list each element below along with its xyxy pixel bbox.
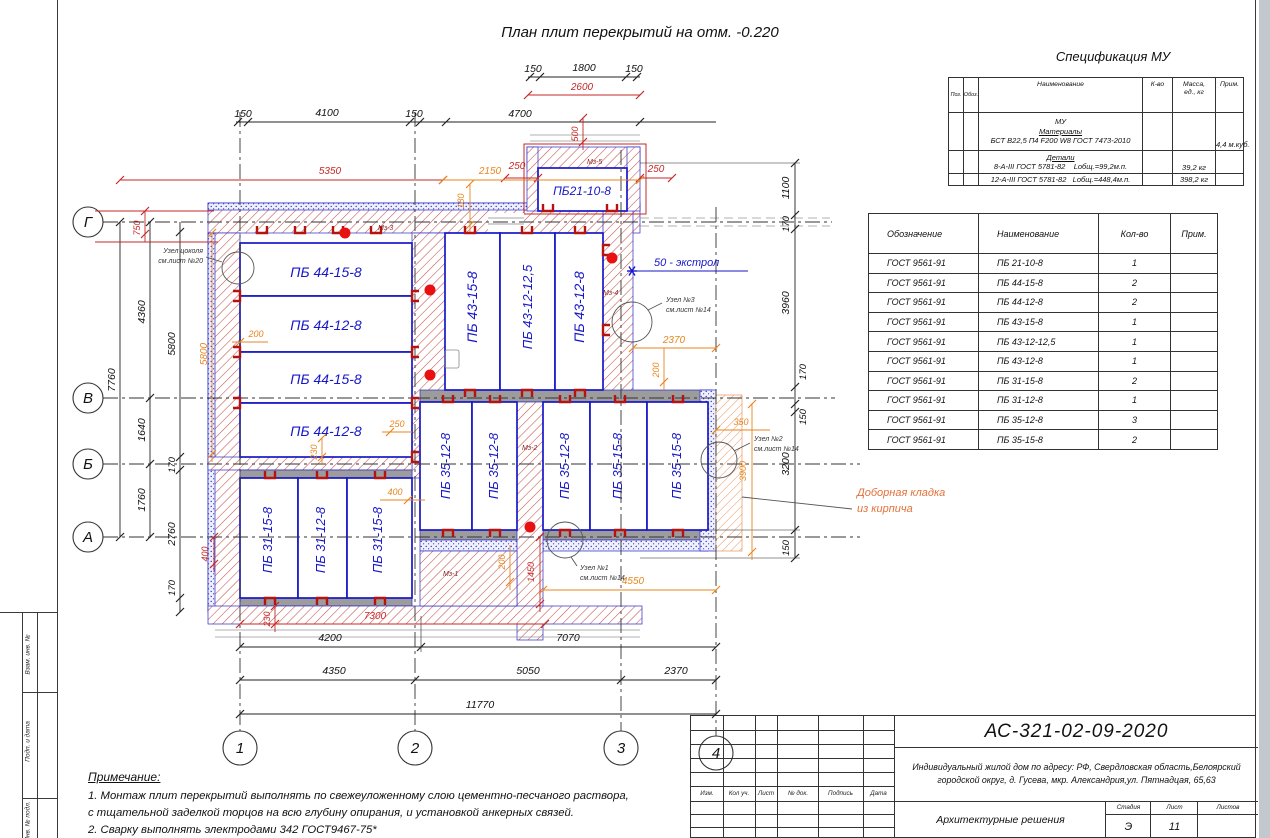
dim-label: 750 <box>132 220 142 235</box>
dim-label: 150 <box>524 63 542 75</box>
side-strip-label-inv: Инв. № подл. <box>25 782 32 838</box>
dim-label: 5050 <box>516 665 540 677</box>
foundation-lines <box>215 135 830 637</box>
mz-label: Мз-4 <box>603 290 618 297</box>
table-row: ГОСТ 9561-91ПБ 35-12-83 <box>869 411 1217 431</box>
slab-label: ПБ 35-12-8 <box>557 432 572 499</box>
dim-label: 7760 <box>106 368 118 392</box>
dim-label: 230 <box>262 611 272 627</box>
table-row: ГОСТ 9561-91ПБ 31-12-81 <box>869 391 1217 411</box>
plan-title: План плит перекрытий на отм. -0.220 <box>501 24 779 41</box>
col-header: Обозначение <box>869 214 979 253</box>
frame-inner-left-line <box>57 0 58 838</box>
dim-label: 1800 <box>572 62 596 74</box>
slab-label: ПБ 43-15-8 <box>464 271 480 343</box>
dim-label: 200 <box>497 554 507 570</box>
axis-label: 3 <box>617 740 626 757</box>
dim-label: 250 <box>647 164 665 175</box>
sheet-cell: Лист 11 <box>1150 801 1198 838</box>
spec-title: Спецификация МУ <box>1056 49 1172 64</box>
anchor-dots <box>340 228 618 533</box>
dim-label: 4350 <box>322 665 346 677</box>
dim-label: 2370 <box>663 665 688 677</box>
col-header: К-во <box>1143 78 1173 112</box>
callout-text: см.лист №14 <box>666 307 711 314</box>
dim-label: 1100 <box>780 177 792 200</box>
node-texts: Узел цоколя см.лист №20 Узел №3 см.лист … <box>158 248 799 582</box>
cell-mass: 39,2 кг <box>1173 151 1216 173</box>
cell-name: Детали 8-А-III ГОСТ 5781-82 Lобщ.=99,2м.… <box>979 151 1143 173</box>
node-callouts <box>206 252 852 566</box>
dim-label: 150 <box>798 408 809 425</box>
anchor-ties <box>233 204 683 605</box>
spec-row-rebar12: 12-А-III ГОСТ 5781-82 Lобщ.=448,4м.п. 39… <box>949 174 1243 185</box>
slab-label: ПБ 43-12-12,5 <box>520 264 535 349</box>
doc-number: АС-321-02-09-2020 <box>894 716 1258 748</box>
table-row: ГОСТ 9561-91ПБ 21-10-81 <box>869 254 1217 274</box>
axis-label: Г <box>84 214 94 231</box>
slab-label: ПБ 31-15-8 <box>370 506 385 573</box>
brick-annotation: Доборная кладка из кирпича <box>855 487 945 515</box>
insulation-label: 50 - экстрол <box>654 257 719 269</box>
project-description: Индивидуальный жилой дом по адресу: РФ, … <box>894 747 1258 802</box>
dim-label: 2600 <box>570 82 594 93</box>
dim-label: 150 <box>781 539 792 556</box>
spec-row-materials: МУ Материалы БСТ В22,5 П4 F200 W8 ГОСТ 7… <box>949 113 1243 151</box>
dim-label: 350 <box>733 417 748 427</box>
mz-label: Мз-2 <box>522 445 537 452</box>
dim-label: 200 <box>247 329 263 339</box>
axis-labels: Г В Б А 1 2 3 4 <box>82 214 720 762</box>
callout-text: см.лист №20 <box>158 258 203 265</box>
dim-label: 3200 <box>780 452 792 476</box>
note-line: 1. Монтаж плит перекрытий выполнять по с… <box>88 788 728 805</box>
col-header: Кол-во <box>1099 214 1171 253</box>
tb-col-ndok: № док. <box>779 790 817 797</box>
axis-label: 1 <box>236 740 244 757</box>
tb-col-kol: Кол уч. <box>724 790 754 797</box>
tb-col-podp: Подпись <box>819 790 862 797</box>
col-header: Наименование <box>979 214 1099 253</box>
side-strip-line-1 <box>22 612 23 838</box>
slab-label: ПБ21-10-8 <box>553 184 611 198</box>
sheet-right-edge <box>1259 0 1270 838</box>
slab-label: ПБ 44-15-8 <box>290 264 362 280</box>
plates-table: Обозначение Наименование Кол-во Прим. ГО… <box>868 213 1218 450</box>
cell-name: МУ Материалы БСТ В22,5 П4 F200 W8 ГОСТ 7… <box>979 113 1143 150</box>
dim-label: 5800 <box>166 332 178 356</box>
table-row: ГОСТ 9561-91ПБ 35-15-82 <box>869 430 1217 449</box>
dim-labels-red: 2600 5350 250 250 500 750 400 7300 230 1… <box>132 82 665 628</box>
cell-name: 12-А-III ГОСТ 5781-82 Lобщ.=448,4м.п. <box>979 174 1143 185</box>
dims-orange <box>208 176 770 594</box>
callout-text: см.лист №14 <box>580 575 625 582</box>
dim-label: 150 <box>234 108 252 120</box>
dim-label: 250 <box>508 161 526 172</box>
dim-label: 500 <box>570 126 580 141</box>
col-header: Обоз. <box>964 78 979 112</box>
dim-label: 2150 <box>478 166 502 177</box>
col-header: Прим. <box>1216 78 1243 112</box>
dim-label: 1640 <box>136 418 148 442</box>
dim-label: 180 <box>456 193 466 208</box>
slabs-group <box>240 168 708 598</box>
col-header: Наименование <box>979 78 1143 112</box>
spec-mu-table: Поз. Обоз. Наименование К-во Масса, ед.,… <box>948 77 1244 186</box>
dim-label: 4360 <box>136 300 148 324</box>
axis-label: 2 <box>410 740 420 757</box>
spec-header-row: Поз. Обоз. Наименование К-во Масса, ед.,… <box>949 78 1243 113</box>
table-row: ГОСТ 9561-91ПБ 43-12-12,51 <box>869 332 1217 352</box>
side-strip-label-vzam: Взам. инв. № <box>25 615 32 695</box>
dim-label: 2760 <box>166 522 178 547</box>
slab-labels: ПБ 44-15-8 ПБ 44-12-8 ПБ 44-15-8 ПБ 44-1… <box>260 184 684 573</box>
dim-label: 3900 <box>738 461 748 481</box>
side-strip-label-podp: Подп. и дата <box>25 702 32 782</box>
slab-label: ПБ 35-12-8 <box>486 432 501 499</box>
dim-label: 200 <box>651 362 661 378</box>
side-strip-top-line <box>0 612 57 613</box>
dim-label: 1450 <box>526 562 536 582</box>
axis-label: А <box>82 529 93 546</box>
side-strip-line-2 <box>37 612 38 838</box>
dim-label: 230 <box>309 444 319 460</box>
dim-label: 4700 <box>508 108 532 120</box>
dim-label: 150 <box>625 63 643 75</box>
dim-label: 170 <box>798 363 809 380</box>
dim-label: 4100 <box>315 107 339 119</box>
dim-label: 400 <box>200 546 210 561</box>
dim-label: 3960 <box>780 291 792 315</box>
brick-label: из кирпича <box>857 503 913 515</box>
cell-note: 4,4 м.куб. <box>1216 113 1250 150</box>
note-line: с тщательной заделкой торцов на всю глуб… <box>88 805 728 822</box>
callout-text: Узел №1 <box>579 565 609 572</box>
slab-label: ПБ 31-12-8 <box>313 506 328 573</box>
mz-labels: Мз-1 Мз-2 Мз-3 Мз-4 Мз-5 <box>378 159 618 578</box>
callout-text: Узел цоколя <box>162 248 203 255</box>
col-header: Поз. <box>949 78 964 112</box>
col-header: Прим. <box>1171 214 1217 253</box>
dim-label: 5800 <box>199 342 210 365</box>
callout-text: Узел №2 <box>753 436 783 443</box>
dim-label: 170 <box>167 579 178 596</box>
dim-labels-orange: 2150 180 5800 200 230 250 400 2370 200 3… <box>199 166 749 587</box>
slab-label: ПБ 44-12-8 <box>290 317 362 333</box>
dim-label: 170 <box>781 215 792 232</box>
tb-col-list: Лист <box>756 790 776 797</box>
section-title: Архитектурные решения <box>894 801 1106 838</box>
dim-label: 1760 <box>136 488 148 512</box>
spec-row-rebar8: Детали 8-А-III ГОСТ 5781-82 Lобщ.=99,2м.… <box>949 151 1243 174</box>
dim-label: 11770 <box>466 699 495 711</box>
table-row: ГОСТ 9561-91ПБ 31-15-82 <box>869 372 1217 392</box>
dim-label: 7300 <box>364 611 387 622</box>
dim-label: 4550 <box>622 576 645 587</box>
slab-label: ПБ 31-15-8 <box>260 506 275 573</box>
dims-red <box>95 91 676 632</box>
slab-label: ПБ 44-15-8 <box>290 371 362 387</box>
brick-label: Доборная кладка <box>855 487 945 499</box>
mz-label: Мз-1 <box>443 571 458 578</box>
dim-label: 170 <box>167 456 178 473</box>
table-row: ГОСТ 9561-91ПБ 44-15-82 <box>869 274 1217 294</box>
dim-label: 4200 <box>318 632 342 644</box>
title-block: Изм. Кол уч. Лист № док. Подпись Дата АС… <box>690 715 1256 838</box>
plates-header-row: Обозначение Наименование Кол-во Прим. <box>869 214 1217 254</box>
note-line: 2. Сварку выполнять электродами 342 ГОСТ… <box>88 822 728 838</box>
mz-label: Мз-5 <box>587 159 602 166</box>
dim-label: 400 <box>387 487 402 497</box>
dims-black <box>116 73 800 718</box>
notes-title: Примечание: <box>88 768 728 786</box>
slab-label: ПБ 44-12-8 <box>290 423 362 439</box>
dim-label: 7070 <box>556 632 580 644</box>
notes-block: Примечание: 1. Монтаж плит перекрытий вы… <box>88 768 728 838</box>
dim-label: 2370 <box>662 335 686 346</box>
table-row: ГОСТ 9561-91ПБ 44-12-82 <box>869 293 1217 313</box>
dim-label: 250 <box>388 419 404 429</box>
axis-lines <box>103 112 860 736</box>
tb-col-data: Дата <box>864 790 893 797</box>
table-row: ГОСТ 9561-91ПБ 43-12-81 <box>869 352 1217 372</box>
frame-inner-right-line <box>1255 0 1256 838</box>
axis-bubbles <box>73 207 733 770</box>
ekstrol-annotation: 50 - экстрол <box>627 257 748 276</box>
drawing-sheet: Взам. инв. № Подп. и дата Инв. № подл. П… <box>0 0 1270 838</box>
table-row: ГОСТ 9561-91ПБ 43-15-81 <box>869 313 1217 333</box>
stage-cell: Стадия Э <box>1105 801 1151 838</box>
axis-label: В <box>83 390 93 407</box>
walls <box>208 144 742 640</box>
axis-label: Б <box>83 456 93 473</box>
slab-label: ПБ 35-12-8 <box>438 432 453 499</box>
callout-text: см.лист №14 <box>754 446 799 453</box>
slab-label: ПБ 43-12-8 <box>571 271 587 343</box>
dim-labels-black: 150 1800 150 150 4100 150 4700 7760 4360… <box>106 62 809 711</box>
sheets-cell: Листов <box>1197 801 1258 838</box>
col-header: Масса, ед., кг <box>1173 78 1216 112</box>
dim-label: 5350 <box>319 166 342 177</box>
callout-text: Узел №3 <box>665 297 695 304</box>
mz-label: Мз-3 <box>378 225 393 232</box>
dim-label: 150 <box>405 108 423 120</box>
slab-label: ПБ 35-15-8 <box>610 432 625 499</box>
slab-label: ПБ 35-15-8 <box>669 432 684 499</box>
cell-mass: 398,2 кг <box>1173 174 1216 185</box>
